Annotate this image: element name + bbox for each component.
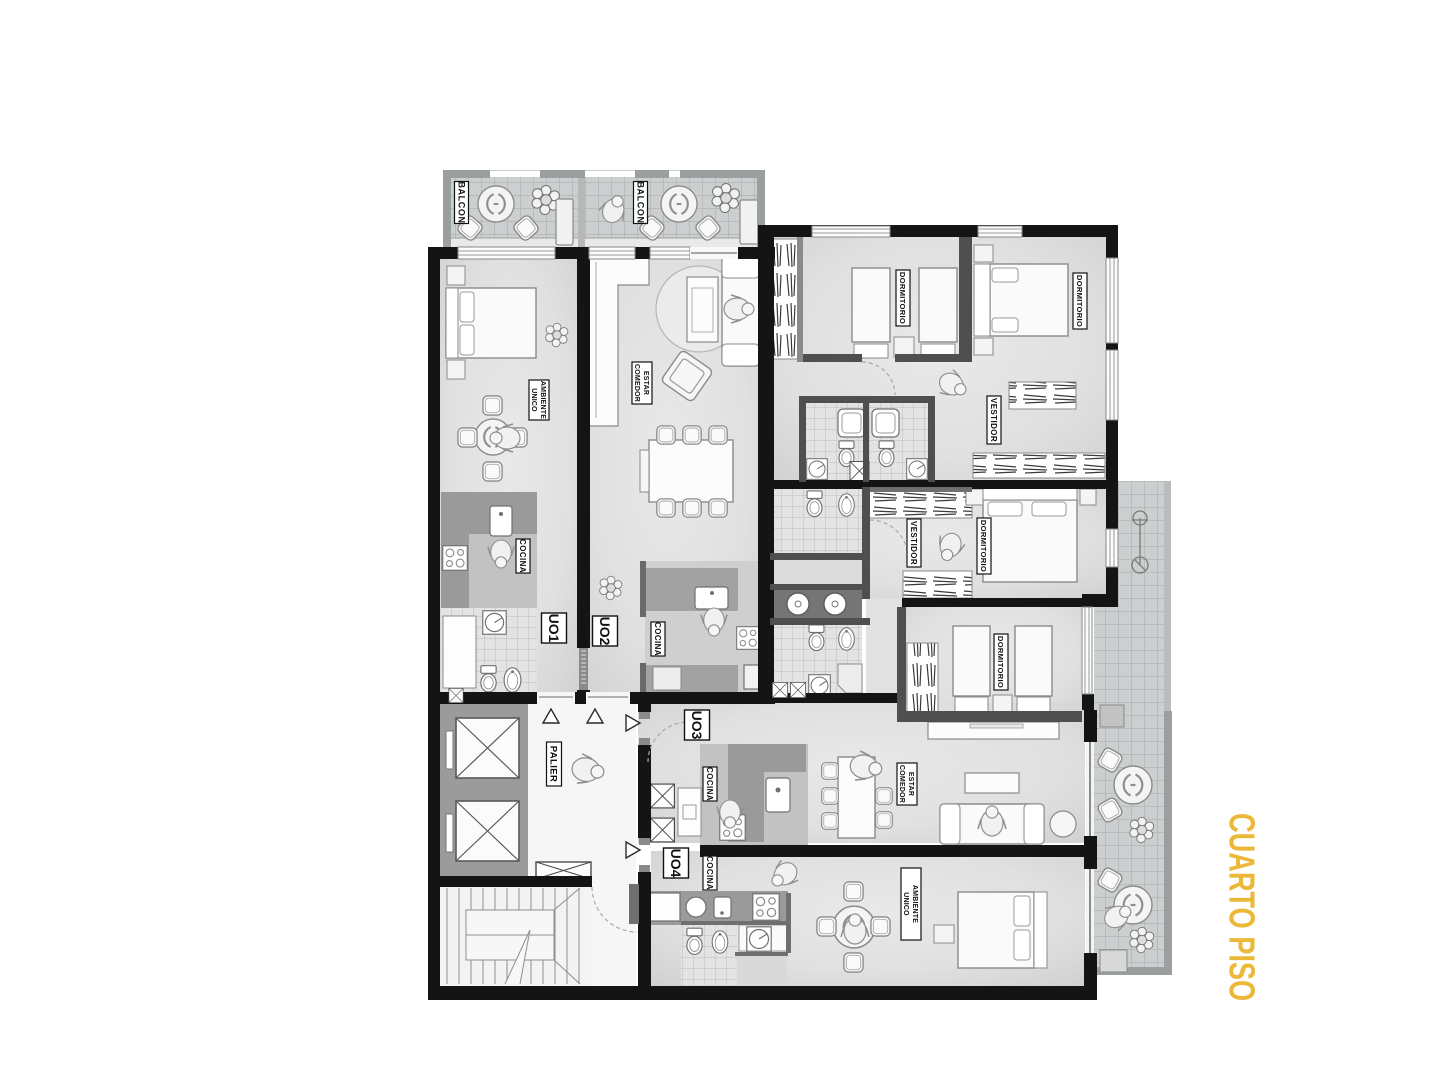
svg-text:PALIER: PALIER (548, 746, 559, 783)
svg-text:UO1: UO1 (546, 614, 562, 643)
svg-text:DORMITORIO: DORMITORIO (898, 272, 907, 324)
svg-text:BALCON: BALCON (456, 181, 466, 223)
svg-text:COCINA: COCINA (705, 856, 714, 890)
svg-text:COCINA: COCINA (653, 622, 662, 656)
svg-text:COMEDOR: COMEDOR (633, 364, 640, 402)
svg-text:BALCON: BALCON (635, 181, 645, 223)
svg-text:CUARTO PISO: CUARTO PISO (1222, 813, 1263, 1001)
svg-text:UO4: UO4 (668, 849, 684, 878)
svg-text:ESTAR: ESTAR (642, 371, 649, 395)
svg-text:AMBIENTE: AMBIENTE (539, 381, 546, 419)
svg-text:UO3: UO3 (689, 711, 705, 740)
svg-text:DORMITORIO: DORMITORIO (979, 520, 988, 572)
svg-text:AMBIENTE: AMBIENTE (911, 885, 918, 923)
svg-text:UNICO: UNICO (902, 892, 909, 916)
svg-text:DORMITORIO: DORMITORIO (996, 636, 1005, 688)
svg-text:VESTIDOR: VESTIDOR (909, 521, 918, 565)
svg-text:COCINA: COCINA (518, 539, 527, 573)
svg-text:ESTAR: ESTAR (907, 772, 914, 796)
svg-text:VESTIDOR: VESTIDOR (989, 398, 998, 442)
svg-text:COCINA: COCINA (705, 767, 714, 801)
svg-text:COMEDOR: COMEDOR (898, 765, 905, 803)
svg-text:DORMITORIO: DORMITORIO (1075, 275, 1084, 327)
svg-text:UNICO: UNICO (530, 388, 537, 412)
svg-text:UO2: UO2 (597, 617, 613, 646)
